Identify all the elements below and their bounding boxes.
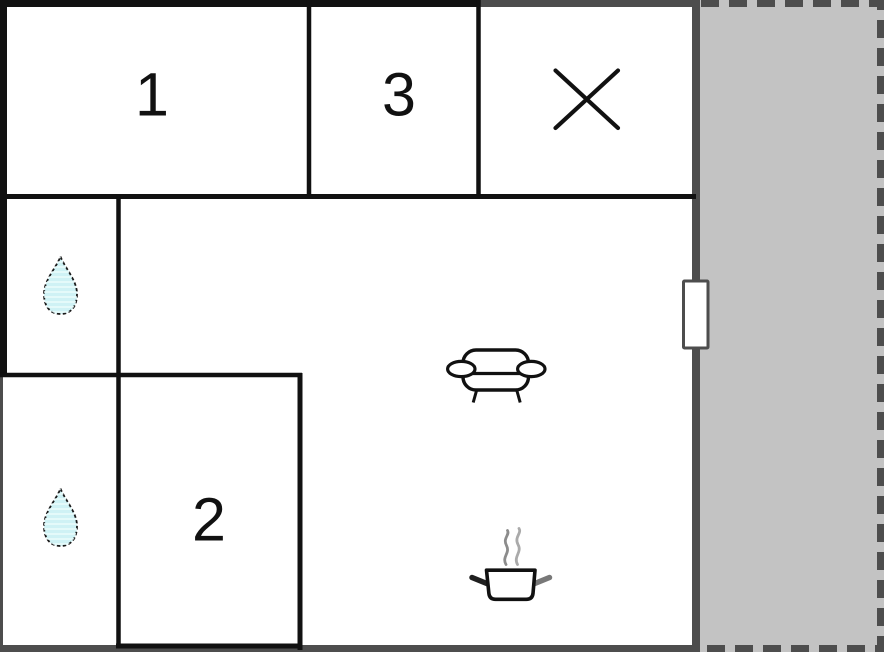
pot-body [487, 570, 536, 599]
room-2-label: 2 [192, 486, 226, 554]
building [0, 0, 700, 652]
sofa-armrest-right [518, 361, 545, 376]
sofa-armrest-left [448, 361, 475, 376]
terrace-area [696, 0, 884, 652]
floor-plan: 1 3 2 [0, 0, 884, 652]
room-3-label: 3 [382, 61, 416, 129]
building-floor [0, 0, 696, 652]
floor-plan-page: 1 3 2 [0, 0, 884, 652]
terrace-floor [696, 0, 884, 652]
room-1-label: 1 [135, 61, 169, 129]
door-icon [684, 281, 709, 348]
